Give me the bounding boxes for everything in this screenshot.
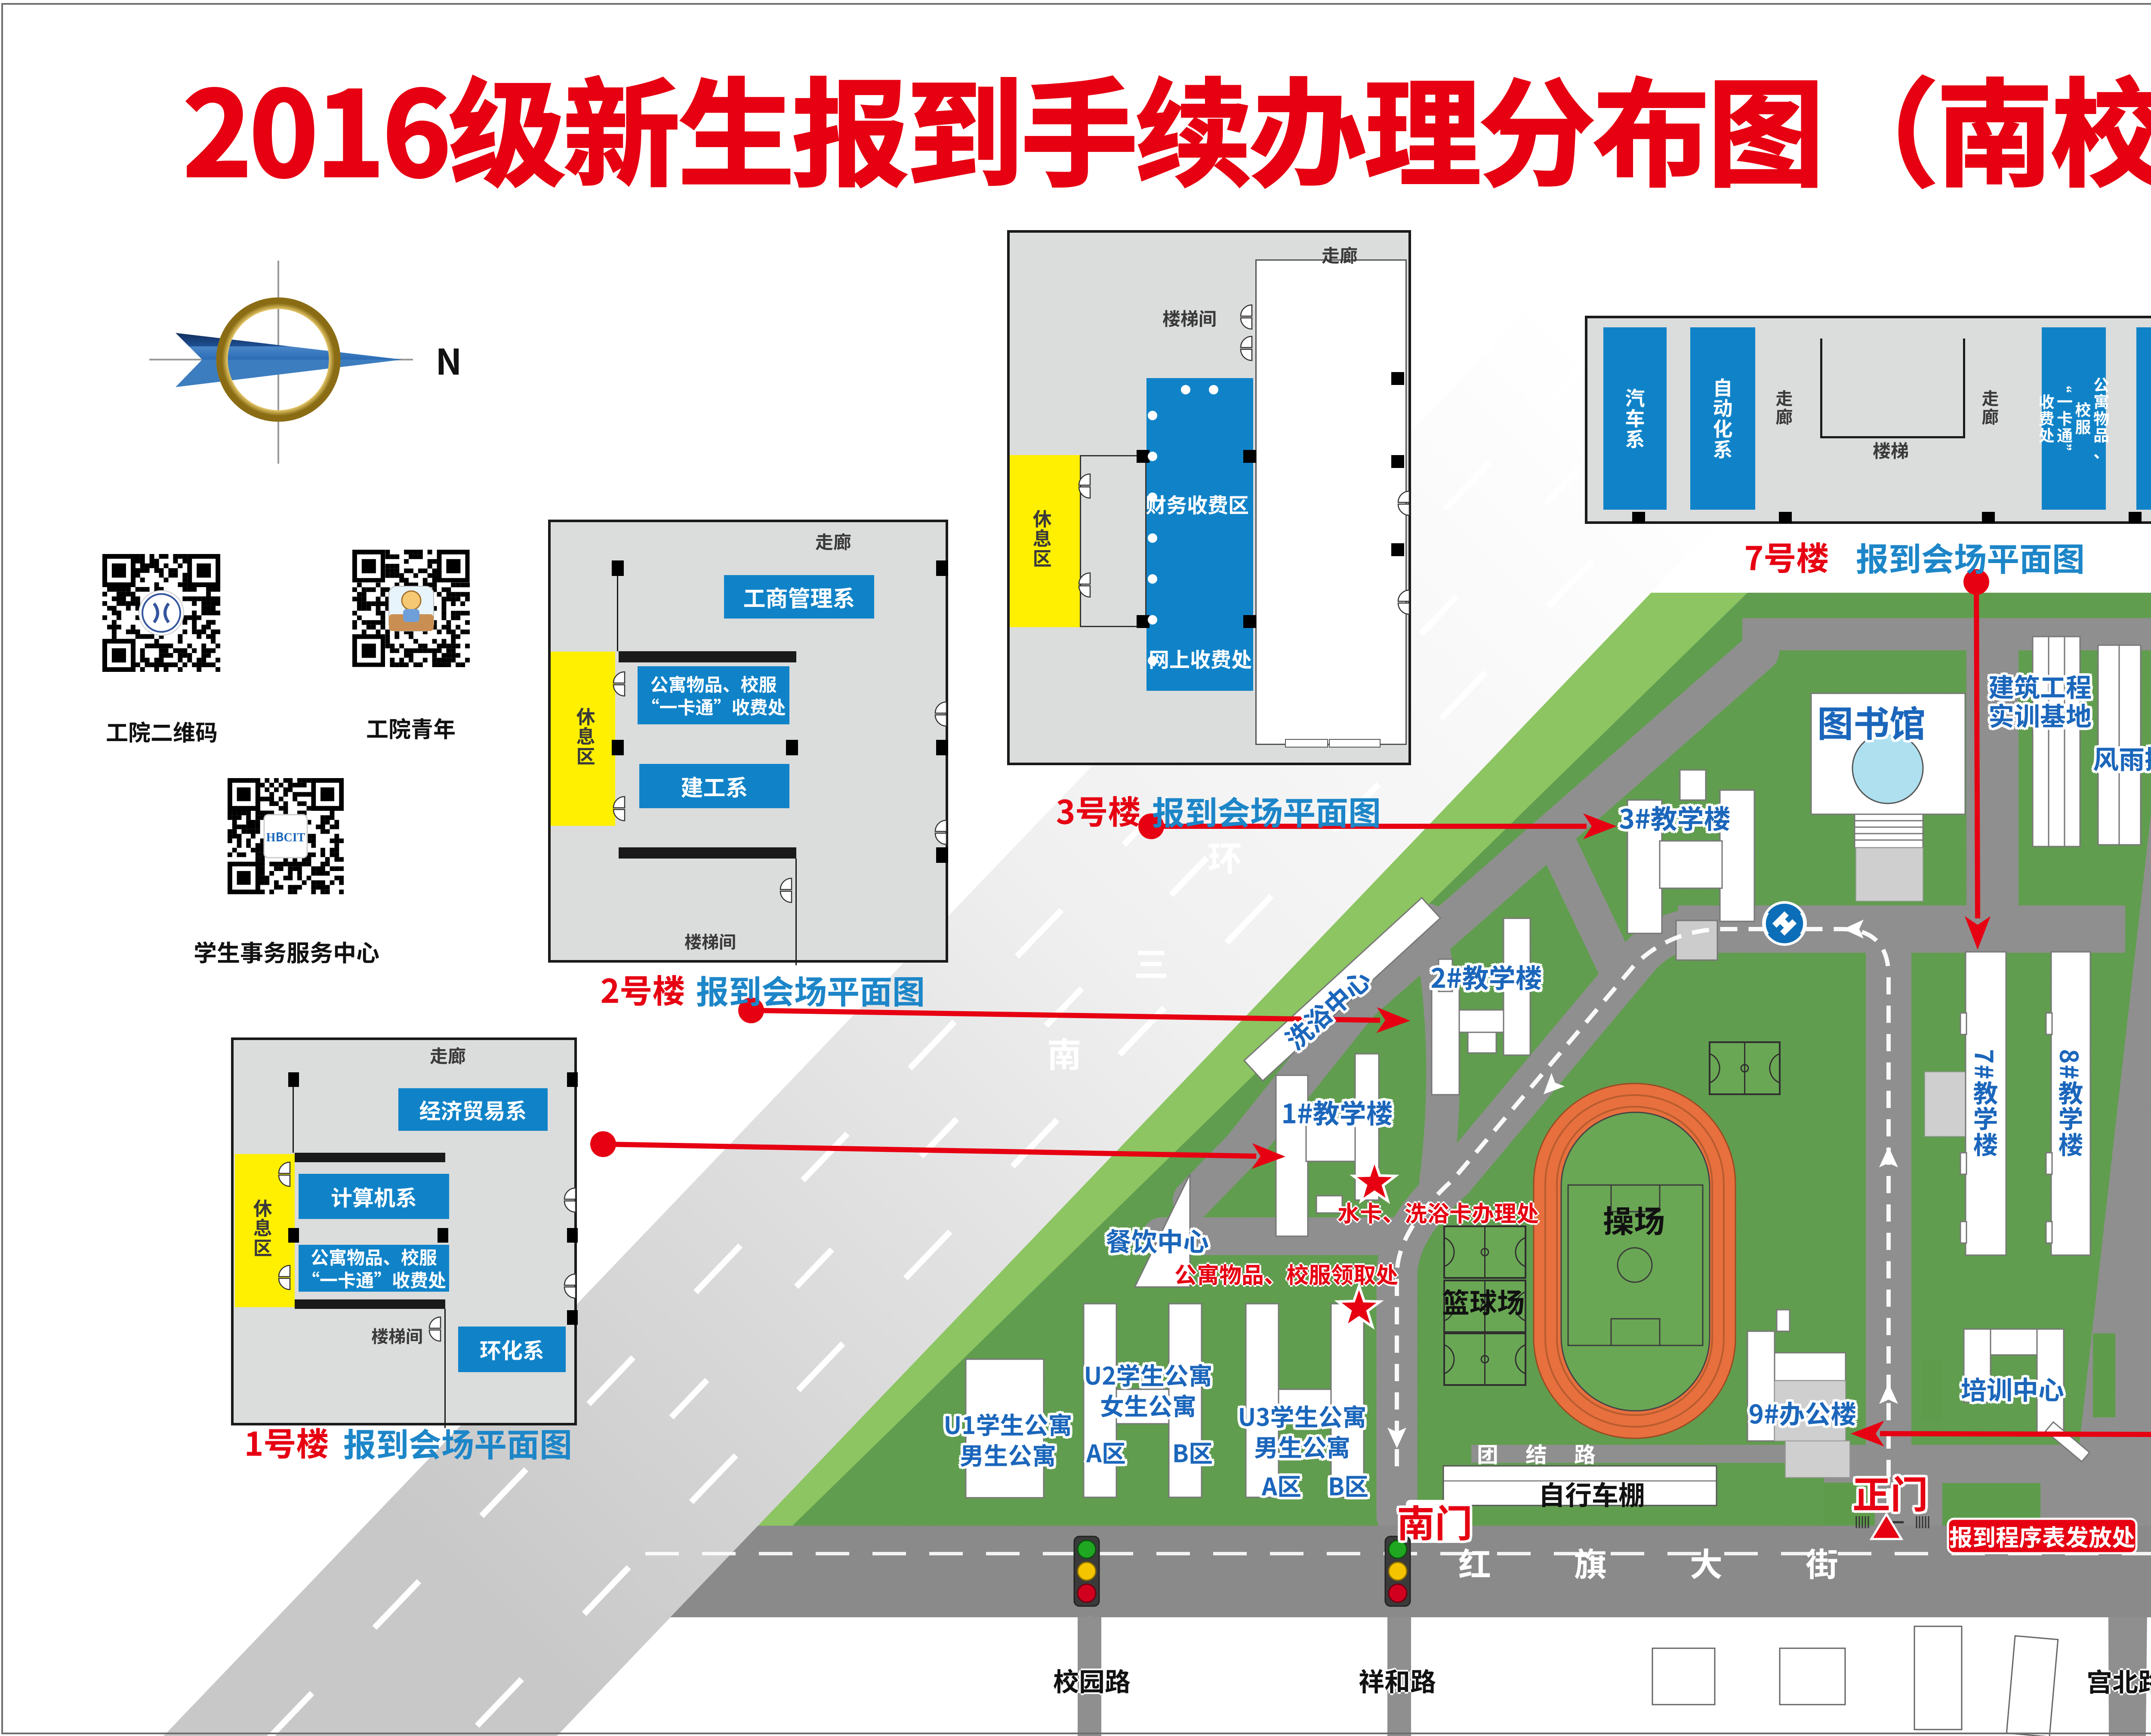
svg-text:HBCIT: HBCIT	[266, 828, 305, 845]
